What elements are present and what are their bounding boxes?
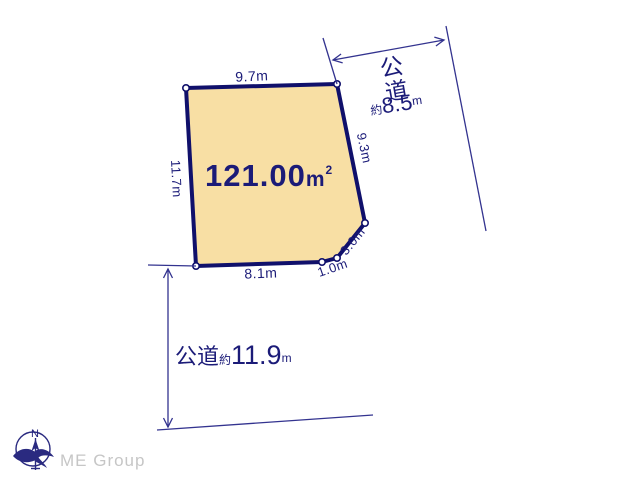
right-road-width-label: 約8.5m [368, 88, 424, 120]
diagram-canvas: 9.7m 11.7m 9.3m 3.0m 1.0m 8.1m 121.00m2 … [0, 0, 640, 480]
bottom-road-width-value: 11.9 [231, 340, 282, 370]
edge-label-right: 9.3m [354, 131, 375, 164]
bottom-road-label: 公道約11.9m [175, 340, 292, 370]
bottom-road-approx: 約 [219, 352, 231, 367]
bottom-road-edge-line [157, 415, 373, 430]
land-plot-diagram: 9.7m 11.7m 9.3m 3.0m 1.0m 8.1m 121.00m2 … [0, 0, 640, 480]
area-value: 121.00 [205, 158, 306, 193]
edge-label-top: 9.7m [235, 67, 269, 84]
bottom-road-extension-line [148, 265, 196, 266]
vertex-dot [362, 220, 368, 226]
right-road-extension-line [323, 38, 337, 84]
compass: N [13, 428, 54, 470]
area-unit: m [306, 168, 326, 191]
area-superscript: 2 [326, 163, 334, 177]
edge-label-bottom: 8.1m [244, 264, 278, 281]
compass-north-label: N [31, 428, 39, 440]
bottom-road-unit: m [282, 351, 292, 365]
right-road-edge-line [446, 26, 486, 231]
bottom-road-name: 公道 [175, 344, 219, 369]
right-road-unit: m [411, 93, 423, 108]
right-road-width-value: 8.5 [380, 89, 414, 118]
logo-text: ME Group [60, 451, 145, 470]
edge-label-left: 11.7m [168, 160, 185, 198]
vertex-dot [183, 85, 189, 91]
